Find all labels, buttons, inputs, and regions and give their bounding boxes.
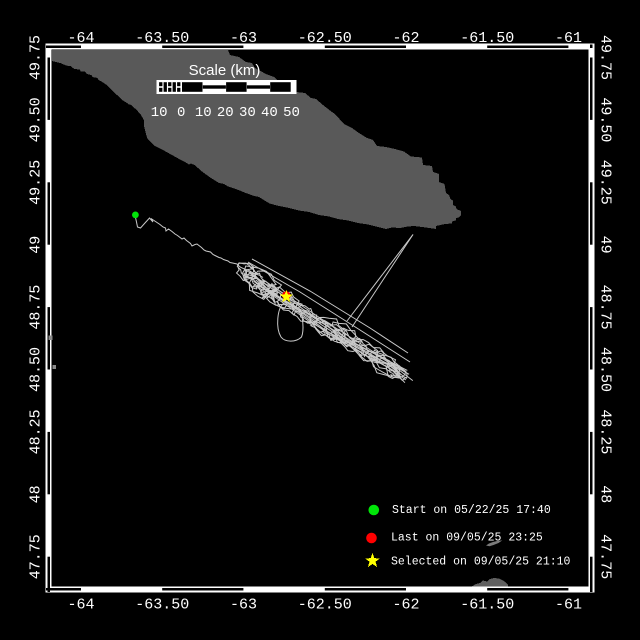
svg-text:-62.50: -62.50 bbox=[298, 30, 352, 47]
svg-text:49.75: 49.75 bbox=[597, 35, 614, 80]
svg-text:49.50: 49.50 bbox=[28, 97, 45, 142]
svg-text:-61: -61 bbox=[555, 597, 582, 614]
svg-text:49.25: 49.25 bbox=[28, 160, 45, 205]
svg-text:47.75: 47.75 bbox=[597, 534, 614, 579]
svg-text:49.25: 49.25 bbox=[597, 160, 614, 205]
svg-text:50: 50 bbox=[283, 105, 300, 121]
svg-text:-64: -64 bbox=[67, 597, 94, 614]
svg-text:30: 30 bbox=[239, 105, 256, 121]
svg-text:49: 49 bbox=[28, 236, 45, 254]
svg-text:-63.50: -63.50 bbox=[135, 30, 189, 47]
svg-text:48.75: 48.75 bbox=[28, 285, 45, 330]
svg-text:-62: -62 bbox=[392, 30, 419, 47]
svg-text:48.75: 48.75 bbox=[597, 285, 614, 330]
svg-text:49.50: 49.50 bbox=[597, 97, 614, 142]
svg-text:Start on 05/22/25 17:40: Start on 05/22/25 17:40 bbox=[392, 504, 551, 517]
svg-text:-61.50: -61.50 bbox=[460, 597, 514, 614]
svg-text:-62.50: -62.50 bbox=[298, 597, 352, 614]
svg-text:-63: -63 bbox=[230, 597, 257, 614]
svg-text:Selected on 09/05/25 21:10: Selected on 09/05/25 21:10 bbox=[391, 556, 571, 569]
svg-text:-64: -64 bbox=[67, 30, 94, 47]
svg-text:-63: -63 bbox=[230, 30, 257, 47]
svg-text:-61: -61 bbox=[555, 30, 582, 47]
svg-text:48.50: 48.50 bbox=[28, 347, 45, 392]
svg-text:10: 10 bbox=[195, 105, 212, 121]
svg-text:-61.50: -61.50 bbox=[460, 30, 514, 47]
svg-text:49.75: 49.75 bbox=[28, 35, 45, 80]
svg-text:48: 48 bbox=[28, 485, 45, 503]
svg-text:47.75: 47.75 bbox=[28, 534, 45, 579]
svg-text:40: 40 bbox=[261, 105, 278, 121]
svg-text:10: 10 bbox=[151, 105, 168, 121]
svg-text:48: 48 bbox=[597, 485, 614, 503]
svg-text:20: 20 bbox=[217, 105, 234, 121]
svg-text:48.25: 48.25 bbox=[597, 409, 614, 454]
svg-text:Scale (km): Scale (km) bbox=[189, 62, 261, 79]
svg-text:-62: -62 bbox=[392, 597, 419, 614]
svg-text:0: 0 bbox=[177, 105, 185, 121]
svg-text:Last on 09/05/25 23:25: Last on 09/05/25 23:25 bbox=[391, 532, 543, 545]
svg-text:49: 49 bbox=[597, 236, 614, 254]
svg-text:-63.50: -63.50 bbox=[135, 597, 189, 614]
svg-text:48.50: 48.50 bbox=[597, 347, 614, 392]
svg-text:48.25: 48.25 bbox=[28, 409, 45, 454]
